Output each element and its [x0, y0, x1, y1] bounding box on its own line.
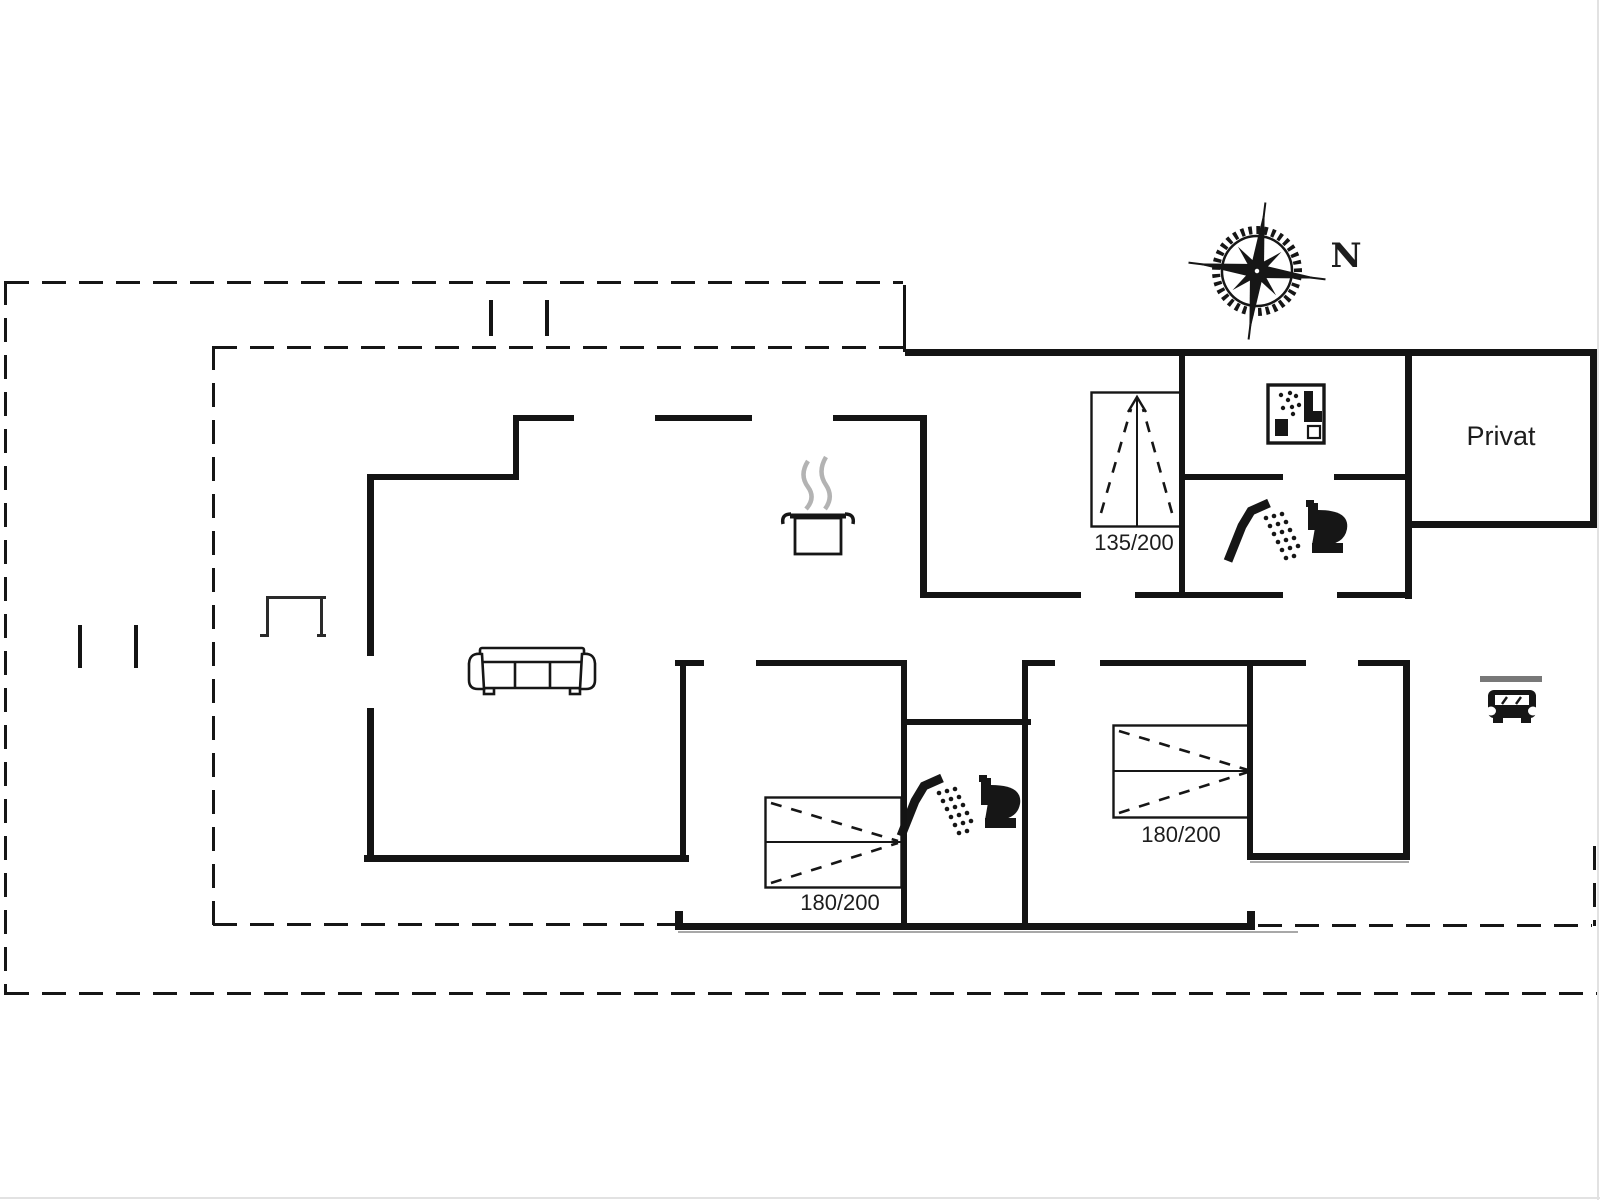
- boundary-gate-tick: [134, 625, 138, 668]
- wall-segment: [680, 660, 686, 860]
- wall-segment: [367, 708, 374, 861]
- floor-plan: N Privat: [0, 0, 1600, 1200]
- wall-segment: [675, 660, 704, 666]
- wall-segment: [1334, 474, 1411, 480]
- shower-toilet-icons: [1220, 498, 1352, 566]
- boundary-gate-tick: [78, 625, 82, 668]
- bed-symbol: [1090, 391, 1184, 529]
- wall-shadow: [678, 931, 1298, 933]
- wall-segment: [1247, 853, 1409, 860]
- north-label: N: [1316, 236, 1376, 276]
- wall-segment: [1247, 660, 1253, 859]
- wall-segment: [833, 415, 925, 421]
- wall-shadow: [1250, 861, 1409, 863]
- wall-segment: [1135, 592, 1283, 598]
- wall-segment: [901, 660, 907, 926]
- wall-segment: [367, 474, 374, 656]
- wall-segment: [920, 415, 927, 598]
- compass-rose-icon: [1182, 196, 1332, 346]
- wall-segment: [364, 855, 689, 862]
- wall-segment: [1358, 660, 1408, 666]
- wall-segment: [1403, 660, 1410, 860]
- wall-segment: [920, 592, 1081, 598]
- privat-room-label: Privat: [1426, 421, 1576, 452]
- image-border: [0, 1197, 1600, 1199]
- shower-toilet-icons: [893, 773, 1025, 841]
- wall-segment: [905, 349, 1597, 356]
- wall-segment: [675, 923, 1255, 930]
- wall-segment: [1179, 474, 1283, 480]
- carport-roof-edge: [1480, 676, 1542, 682]
- washing-machine-icon: [1266, 383, 1326, 445]
- shower-spray: [1264, 512, 1301, 561]
- car-icon: [1485, 686, 1539, 724]
- pot-icon: [778, 455, 858, 557]
- wall-segment: [367, 474, 519, 480]
- wall-segment: [903, 285, 906, 352]
- wall-segment: [1247, 911, 1255, 925]
- wall-segment: [516, 415, 574, 421]
- boundary-gate-tick: [489, 300, 493, 336]
- bed-size-label: 180/200: [1126, 822, 1236, 848]
- bed-symbol: [1112, 724, 1254, 820]
- shower-spray: [937, 787, 974, 836]
- bed-size-label: 180/200: [790, 890, 890, 916]
- dashed-boundary: [4, 281, 7, 995]
- dashed-boundary: [212, 346, 215, 928]
- image-border: [1597, 0, 1599, 1200]
- garden-bench-line: [260, 634, 269, 637]
- dashed-boundary: [5, 992, 1597, 995]
- wall-segment: [1405, 521, 1597, 528]
- bed-symbol: [764, 796, 904, 890]
- wall-segment: [655, 415, 752, 421]
- wall-segment: [1337, 592, 1411, 598]
- wall-segment: [901, 719, 1031, 725]
- sofa-icon: [466, 644, 598, 698]
- boundary-gate-tick: [545, 300, 549, 336]
- wall-segment: [1100, 660, 1306, 666]
- dashed-boundary: [5, 281, 903, 284]
- garden-bench-line: [266, 596, 326, 599]
- garden-bench-line: [266, 596, 269, 637]
- wall-segment: [756, 660, 905, 666]
- dashed-boundary: [213, 346, 905, 349]
- wall-segment: [513, 415, 519, 480]
- garden-bench-line: [317, 634, 326, 637]
- dashed-boundary: [213, 923, 675, 926]
- dashed-boundary: [1258, 924, 1592, 927]
- bed-size-label: 135/200: [1086, 530, 1182, 556]
- wall-segment: [675, 911, 683, 925]
- dashed-boundary: [1593, 846, 1596, 926]
- garden-bench-line: [320, 596, 323, 637]
- wall-segment: [1022, 660, 1028, 926]
- wall-segment: [1590, 349, 1597, 528]
